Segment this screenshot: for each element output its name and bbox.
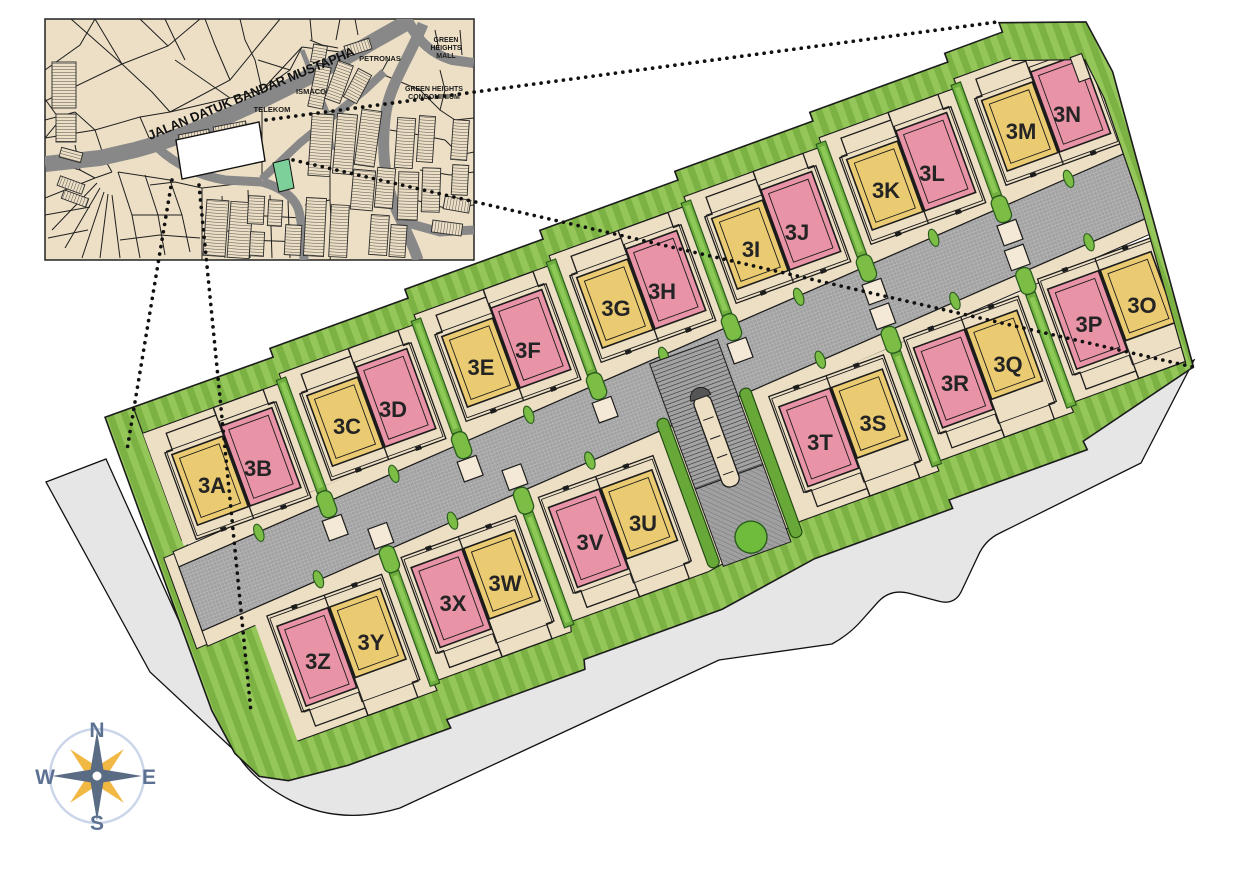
- svg-text:3B: 3B: [244, 456, 272, 481]
- svg-text:3A: 3A: [198, 473, 226, 498]
- svg-text:ISMACO: ISMACO: [296, 87, 326, 96]
- svg-text:3X: 3X: [440, 591, 467, 616]
- svg-text:3S: 3S: [860, 411, 887, 436]
- svg-text:3P: 3P: [1076, 312, 1103, 337]
- svg-text:GREEN HEIGHTS: GREEN HEIGHTS: [405, 86, 463, 93]
- svg-text:3N: 3N: [1053, 102, 1081, 127]
- svg-text:3D: 3D: [379, 397, 407, 422]
- svg-text:3E: 3E: [468, 355, 495, 380]
- svg-text:S: S: [90, 812, 104, 835]
- svg-text:3J: 3J: [785, 220, 809, 245]
- svg-text:PETRONAS: PETRONAS: [359, 54, 401, 63]
- svg-text:3U: 3U: [629, 511, 657, 536]
- svg-text:3W: 3W: [489, 571, 522, 596]
- svg-text:3Y: 3Y: [358, 630, 385, 655]
- svg-text:3K: 3K: [872, 178, 900, 203]
- svg-text:3Q: 3Q: [993, 352, 1022, 377]
- svg-text:GREEN: GREEN: [434, 37, 459, 44]
- svg-text:3G: 3G: [601, 296, 630, 321]
- svg-text:3T: 3T: [807, 430, 833, 455]
- svg-text:3F: 3F: [515, 338, 541, 363]
- svg-text:W: W: [35, 766, 55, 789]
- svg-text:HEIGHTS: HEIGHTS: [430, 45, 461, 52]
- svg-text:3V: 3V: [577, 530, 604, 555]
- svg-text:3C: 3C: [333, 414, 361, 439]
- svg-text:3M: 3M: [1006, 119, 1037, 144]
- svg-text:3H: 3H: [648, 279, 676, 304]
- svg-text:MALL: MALL: [436, 53, 456, 60]
- svg-text:3Z: 3Z: [305, 649, 331, 674]
- svg-text:N: N: [89, 719, 104, 742]
- svg-text:3R: 3R: [941, 371, 969, 396]
- svg-text:TELEKOM: TELEKOM: [254, 105, 291, 114]
- svg-text:3L: 3L: [919, 161, 945, 186]
- svg-text:3I: 3I: [742, 237, 760, 262]
- svg-text:3O: 3O: [1127, 293, 1156, 318]
- svg-text:E: E: [142, 766, 156, 789]
